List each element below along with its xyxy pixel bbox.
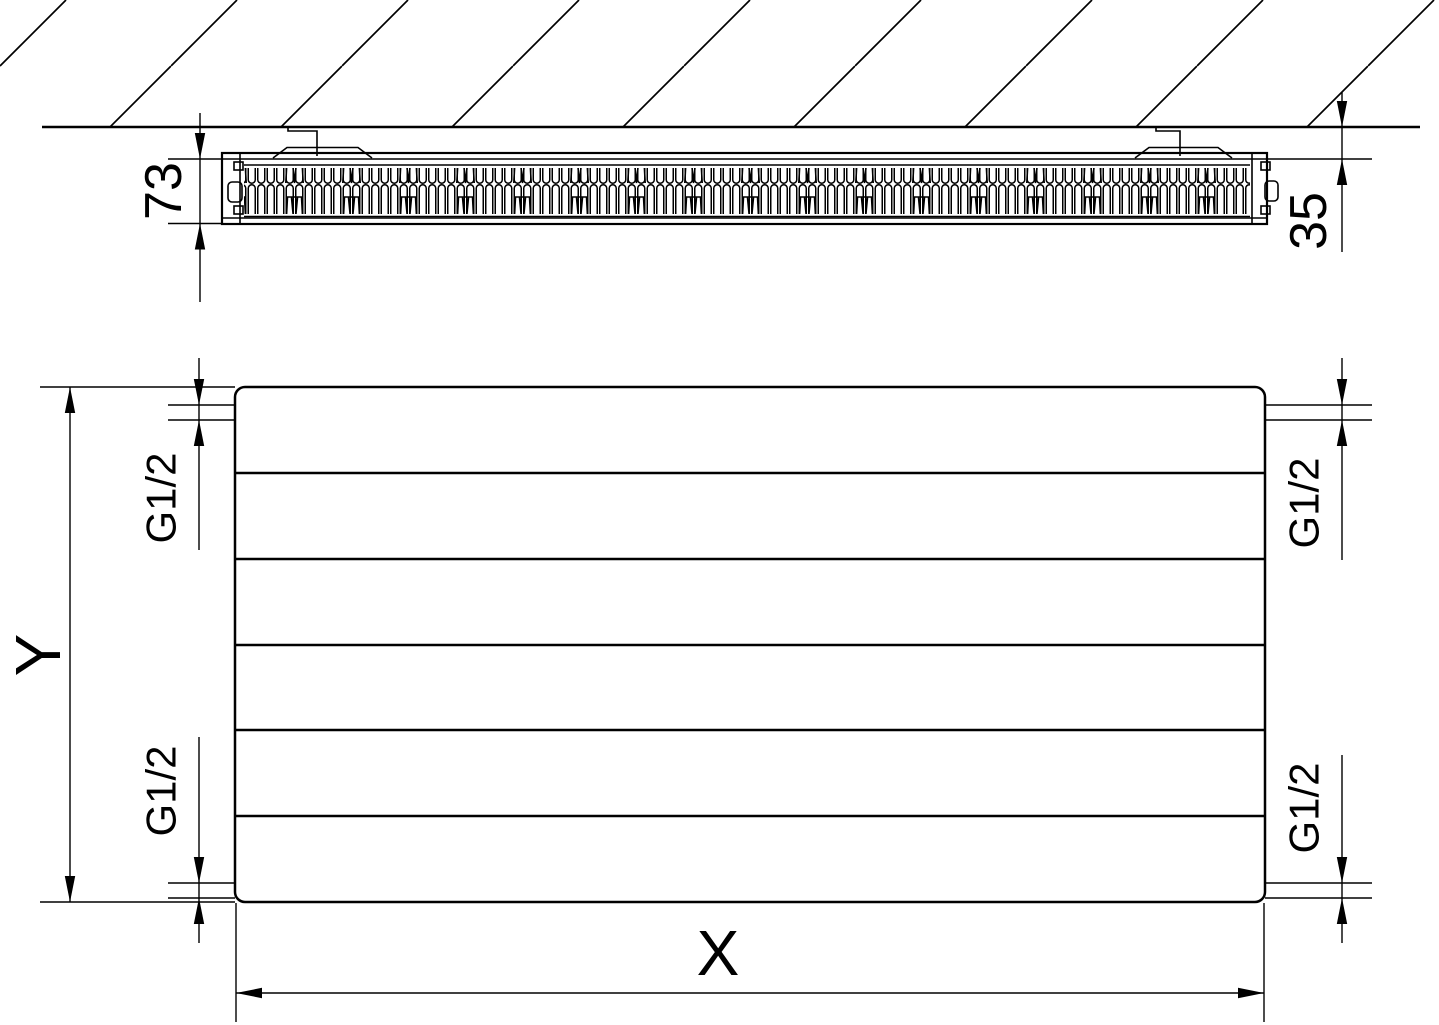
depth-dimension-label: 73 [135, 162, 193, 220]
dimension-g12-bottom-right: G1/2 [1281, 755, 1348, 943]
radiator-front-view [235, 387, 1265, 902]
height-dimension-label: Y [2, 634, 74, 677]
connection-stub-bottom-right [1265, 883, 1372, 898]
dimension-g12-bottom-left: G1/2 [138, 737, 205, 943]
connection-stub-bottom-left [168, 883, 235, 898]
connection-stub-top-left [168, 405, 235, 420]
g12-label-bottom-right: G1/2 [1281, 762, 1328, 853]
clip-left-bottom [234, 206, 243, 214]
g12-label-top-left: G1/2 [138, 452, 185, 543]
wall-hatching [0, 0, 1439, 126]
dimension-height-y: Y [2, 387, 235, 902]
dimension-depth-73: 73 [135, 113, 222, 302]
wall-distance-dimension-label: 35 [1280, 192, 1338, 250]
convector-fins [244, 168, 1250, 214]
dimension-g12-top-right: G1/2 [1281, 358, 1348, 560]
connection-stub-top-right [1265, 405, 1372, 420]
radiator-top-view [222, 128, 1278, 225]
clip-right-top [1261, 162, 1270, 170]
g12-label-top-right: G1/2 [1281, 457, 1328, 548]
clip-right-bottom [1261, 206, 1270, 214]
wall-section [0, 0, 1439, 127]
width-dimension-label: X [697, 917, 740, 989]
radiator-technical-drawing: 73 35 G1/2 [0, 0, 1439, 1025]
g12-label-bottom-left: G1/2 [138, 745, 185, 836]
dimension-width-x: X [236, 903, 1264, 1022]
clip-left-top [234, 162, 243, 170]
